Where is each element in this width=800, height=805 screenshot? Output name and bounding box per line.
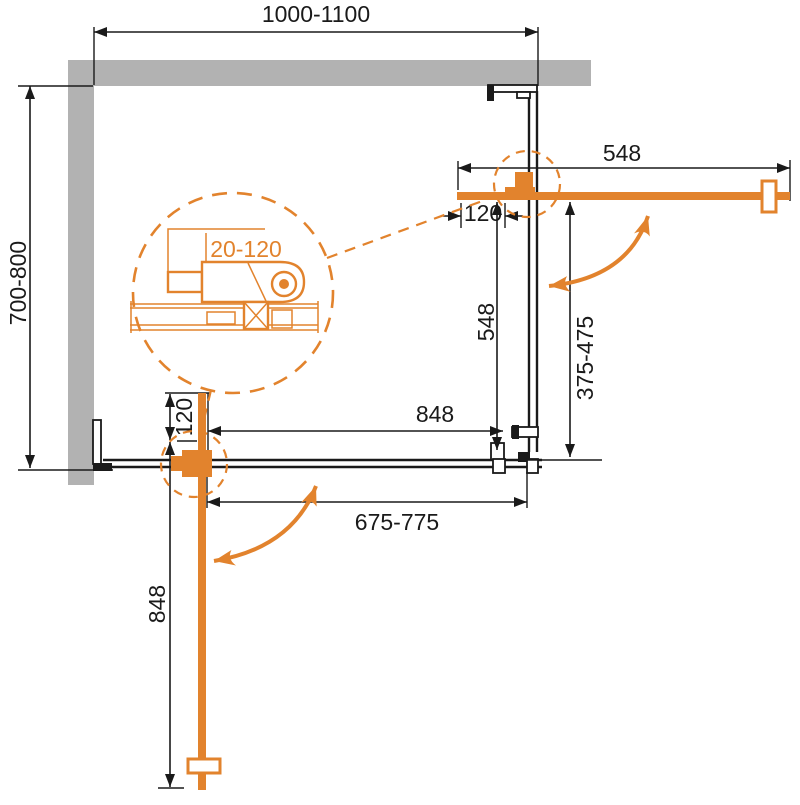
detail-profile-drawing: 20-120 [130,229,318,333]
fixed-panel-right [529,91,537,452]
dim-overall-depth: 700-800 [5,86,113,470]
dim-panel-right-length: 548 [473,202,499,450]
dim-panel-bottom-range: 675-775 [207,472,527,535]
detail-wall-profile-section [168,272,202,292]
drawing-canvas: 1000-1100 700-800 548 120 548 375-475 84… [0,0,800,800]
door-right-pivot [505,187,535,200]
swing-arrow-bottom [214,486,316,561]
dim-label-panel-right-length: 548 [473,303,499,341]
dim-label-door-bottom-offset: 120 [171,398,197,436]
dim-panel-right-range: 375-475 [523,202,602,460]
dim-label-panel-right-range: 375-475 [572,316,598,400]
dim-label-door-right-length: 548 [603,140,641,166]
door-right [457,172,790,212]
door-bottom-pivot [182,450,212,477]
swing-arrow-right [549,216,648,286]
fixed-panel-bottom [103,460,542,467]
dim-label-overall-depth: 700-800 [5,241,31,325]
dim-label-panel-bottom-length: 848 [416,401,454,427]
wall-left [68,60,94,485]
wall-profile-left [93,420,112,471]
dim-panel-bottom-length: 848 [208,393,503,450]
dim-label-overall-width: 1000-1100 [262,1,370,27]
dim-label-profile-adjust: 20-120 [210,236,282,262]
wall-top [68,60,591,86]
door-bottom-handle [188,759,220,773]
shower-enclosure-plan-drawing: 1000-1100 700-800 548 120 548 375-475 84… [0,0,800,800]
walls [68,60,591,485]
wall-profile-top [487,85,537,101]
door-bottom [171,393,220,790]
door-right-handle [762,181,776,212]
dim-label-panel-bottom-range: 675-775 [355,509,439,535]
dim-label-door-bottom-length: 848 [144,585,170,623]
detail-leader-right [327,196,496,258]
